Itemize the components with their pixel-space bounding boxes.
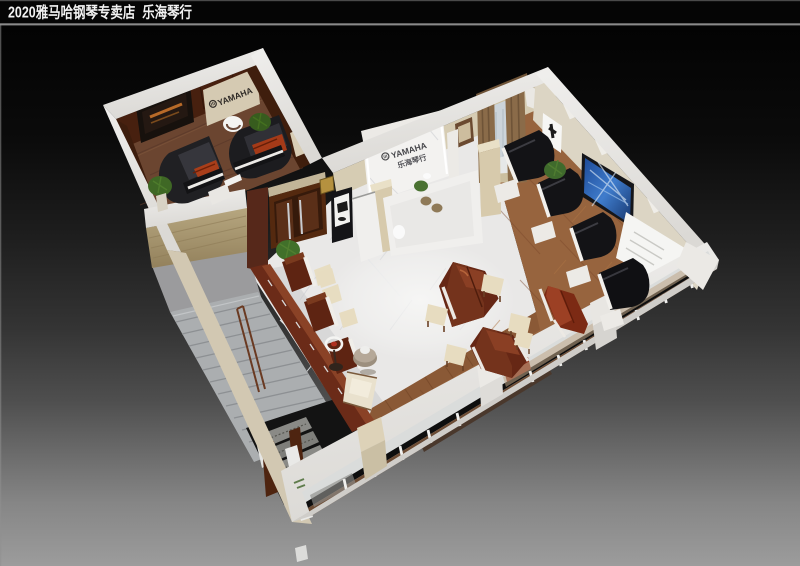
svg-text:2020雅马哈钢琴专卖店 乐海琴行: 2020雅马哈钢琴专卖店 乐海琴行 bbox=[8, 3, 192, 22]
